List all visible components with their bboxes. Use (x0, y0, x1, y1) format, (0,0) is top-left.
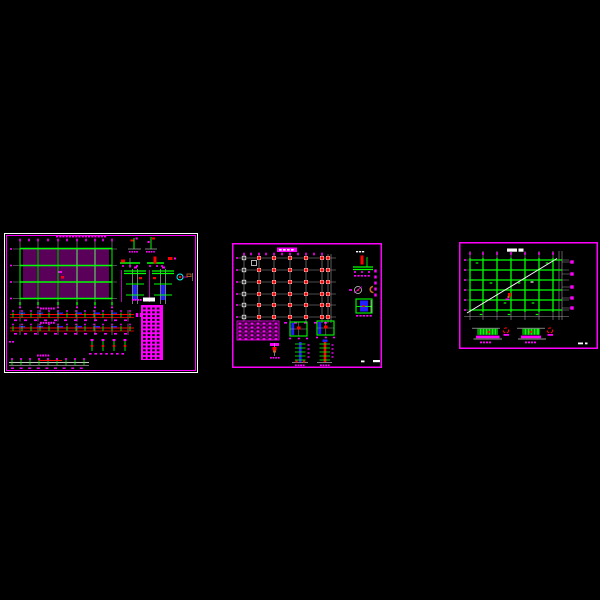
d1-red-mark (488, 331, 490, 333)
col-section-2-magenta-cap (162, 267, 165, 269)
col-section-2-blue-core (161, 285, 165, 300)
detail-a-red-mark (131, 240, 134, 242)
sheet-column-grid-plan[interactable] (232, 243, 382, 368)
strip-b-title (40, 322, 55, 324)
pile2-cap (323, 340, 328, 342)
rd1-red-column (361, 256, 364, 265)
plan-bottom-col-ticks (19, 302, 112, 305)
grid-axis-vlines (244, 254, 331, 323)
inner-border (7, 236, 196, 371)
strip-a-blue-plates (19, 313, 117, 314)
d2-symbol-base (548, 334, 554, 336)
rd1-green-beams (353, 267, 373, 270)
col-section-1-magenta-cap (134, 267, 137, 269)
detail-c-red-plate (121, 260, 125, 263)
sheet-roof-framing-plan[interactable] (459, 242, 598, 349)
rd1-top-text (356, 251, 364, 252)
scatter-green-c (504, 302, 535, 303)
scale-mark-1 (578, 343, 583, 345)
sheet-floor-framing-plan[interactable] (4, 233, 198, 373)
footing1-dims (289, 338, 308, 340)
strip-b-stud-flags (12, 324, 131, 326)
strip-b-left-note (9, 341, 14, 343)
diagonal-brace (467, 259, 557, 314)
d2-symbol-circle (547, 328, 552, 333)
scale-mark-2 (585, 343, 588, 345)
detail-a-magenta-mark (136, 238, 138, 240)
detail-d-dims (149, 265, 163, 267)
d1-symbol-base (504, 334, 510, 336)
sheet-roof-framing-plan-drawing (459, 242, 598, 349)
diagonal-annotation (531, 281, 534, 282)
grid-top-dim-ticks (243, 253, 323, 256)
d1-label (480, 342, 491, 344)
detail-a-label (129, 251, 138, 253)
outer-border (5, 234, 198, 373)
col-section-1-red-mark (139, 277, 142, 279)
grid-axis-hlines (238, 258, 336, 317)
d1-symbol-circle (503, 328, 508, 333)
plan-center-annotation (59, 271, 62, 273)
strip-b-bottom-labels (14, 333, 127, 335)
misc-details-heads (91, 339, 127, 341)
strip-a-stud-flags (12, 310, 131, 312)
right-margin-flags (374, 270, 376, 297)
rd1-dims (354, 271, 370, 273)
misc-details-red-marks (91, 345, 127, 347)
col-section-2-red-mark (153, 277, 156, 279)
d2-base-band (521, 336, 541, 339)
scatter-green-a (476, 262, 549, 263)
title-text-1 (507, 249, 517, 252)
footing1-red-column (297, 327, 301, 330)
scale-mark-1 (361, 361, 365, 363)
rd1-label (354, 275, 370, 277)
d2-label (525, 342, 536, 344)
base-detail-red (273, 347, 277, 350)
right-flags (570, 260, 573, 309)
plan-bottom-dim-ticks (19, 307, 113, 309)
strip-c-flags (11, 358, 85, 360)
col-section-2-flange (152, 271, 174, 274)
strip-a-title (40, 308, 55, 310)
pile1-label (295, 365, 305, 367)
detail-e-red-mark (168, 257, 173, 260)
base-detail-label (270, 357, 280, 359)
misc-details-posts (92, 341, 125, 351)
pile2-side-dims (332, 344, 334, 357)
misc-details-labels (89, 353, 124, 355)
rd3-dims (356, 315, 372, 317)
scale-mark-2 (373, 360, 380, 362)
circle-detail-center (179, 276, 181, 278)
col-section-1-flange (124, 271, 146, 274)
base-detail-orange (273, 351, 276, 353)
schedule-title-block (143, 298, 155, 302)
detail-b-red-mark (152, 238, 155, 240)
plan-top-dim-ticks (19, 239, 113, 242)
scatter-green-d (480, 314, 539, 315)
detail-b-label (146, 251, 155, 253)
footing2-red-column (324, 326, 328, 329)
detail-e-magenta-mark (174, 258, 176, 260)
flag-leaders (562, 262, 571, 308)
pile2-label (320, 365, 330, 367)
footing2-dims (316, 337, 335, 339)
circle-detail-orange-box (187, 274, 191, 277)
col-section-1-blue-core (133, 285, 137, 300)
left-dim-ticks (464, 259, 466, 311)
title-text-2 (519, 249, 524, 252)
strip-c-labels (11, 368, 83, 369)
detail-b-magenta-mark (148, 241, 150, 243)
strip-c-title (37, 355, 49, 357)
plan-left-dim-ticks (10, 248, 12, 299)
pile1-side-dims (308, 344, 310, 357)
axis-label-box (252, 261, 257, 266)
detail-d-red-column (154, 257, 157, 264)
center-marker-label (506, 299, 510, 301)
rd3-center-mark (363, 305, 365, 307)
strip-a-bottom-labels (14, 320, 127, 322)
strip-a-right-marks (136, 313, 142, 317)
d2-red-mark (530, 331, 532, 333)
sheet-floor-framing-plan-drawing (4, 233, 198, 373)
rd2-orange-hook (370, 287, 373, 293)
cad-workspace (0, 0, 600, 600)
sheet-column-grid-plan-drawing (232, 243, 382, 368)
rd2-leader (349, 289, 352, 291)
strip-b-blue-plates (19, 326, 117, 327)
plan-axis-hlines (13, 249, 117, 299)
column-squares (257, 256, 330, 319)
grid-left-ticks (236, 257, 238, 318)
plan-red-marker (61, 276, 64, 279)
center-orange-marker (508, 296, 510, 298)
top-dim-ticks (469, 252, 554, 255)
d1-base-band (476, 336, 500, 339)
